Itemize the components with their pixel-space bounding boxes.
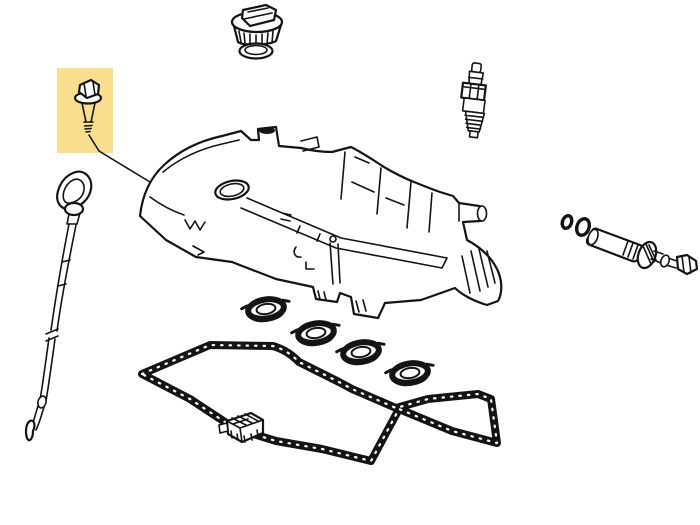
cover-breather-port	[478, 206, 487, 221]
part-highlight-box	[57, 68, 113, 153]
pcv-valve[interactable]	[586, 228, 660, 271]
parts-diagram	[0, 0, 700, 525]
spark-plug-tube-seal-1[interactable]	[241, 296, 292, 324]
spark-plug[interactable]	[457, 62, 491, 138]
cover-chimney-top	[259, 127, 275, 134]
o-ring	[561, 214, 574, 229]
cover-bolt-boss	[330, 236, 336, 242]
seal-hole	[400, 367, 420, 380]
oil-filler-cap[interactable]	[232, 5, 282, 45]
pcv-bolt[interactable]	[651, 251, 697, 274]
cylinder-head-cover[interactable]	[140, 127, 501, 318]
plug-tip	[469, 131, 478, 138]
spark-plug-tube-seal-2[interactable]	[291, 320, 342, 348]
seal-hole	[351, 346, 371, 359]
head-cover-gasket[interactable]	[142, 345, 497, 461]
spark-plug-tube-seal-4[interactable]	[385, 360, 436, 388]
gasket-bead-texture	[142, 345, 497, 461]
oil-filler-cap-seal[interactable]	[240, 44, 273, 59]
dipstick-rod	[31, 224, 76, 430]
baffle-tab	[219, 423, 228, 433]
pcv-bolt-head	[677, 255, 697, 274]
pcv-o-ring-small[interactable]	[561, 214, 574, 229]
seal-hole	[256, 303, 276, 316]
spark-plug-tube-seal-3[interactable]	[336, 339, 387, 367]
seal-hole	[306, 327, 326, 340]
dipstick-mid-collar	[37, 395, 48, 409]
dipstick-tip	[26, 421, 34, 441]
oil-dipstick[interactable]	[26, 172, 91, 441]
plug-threads	[463, 111, 484, 132]
